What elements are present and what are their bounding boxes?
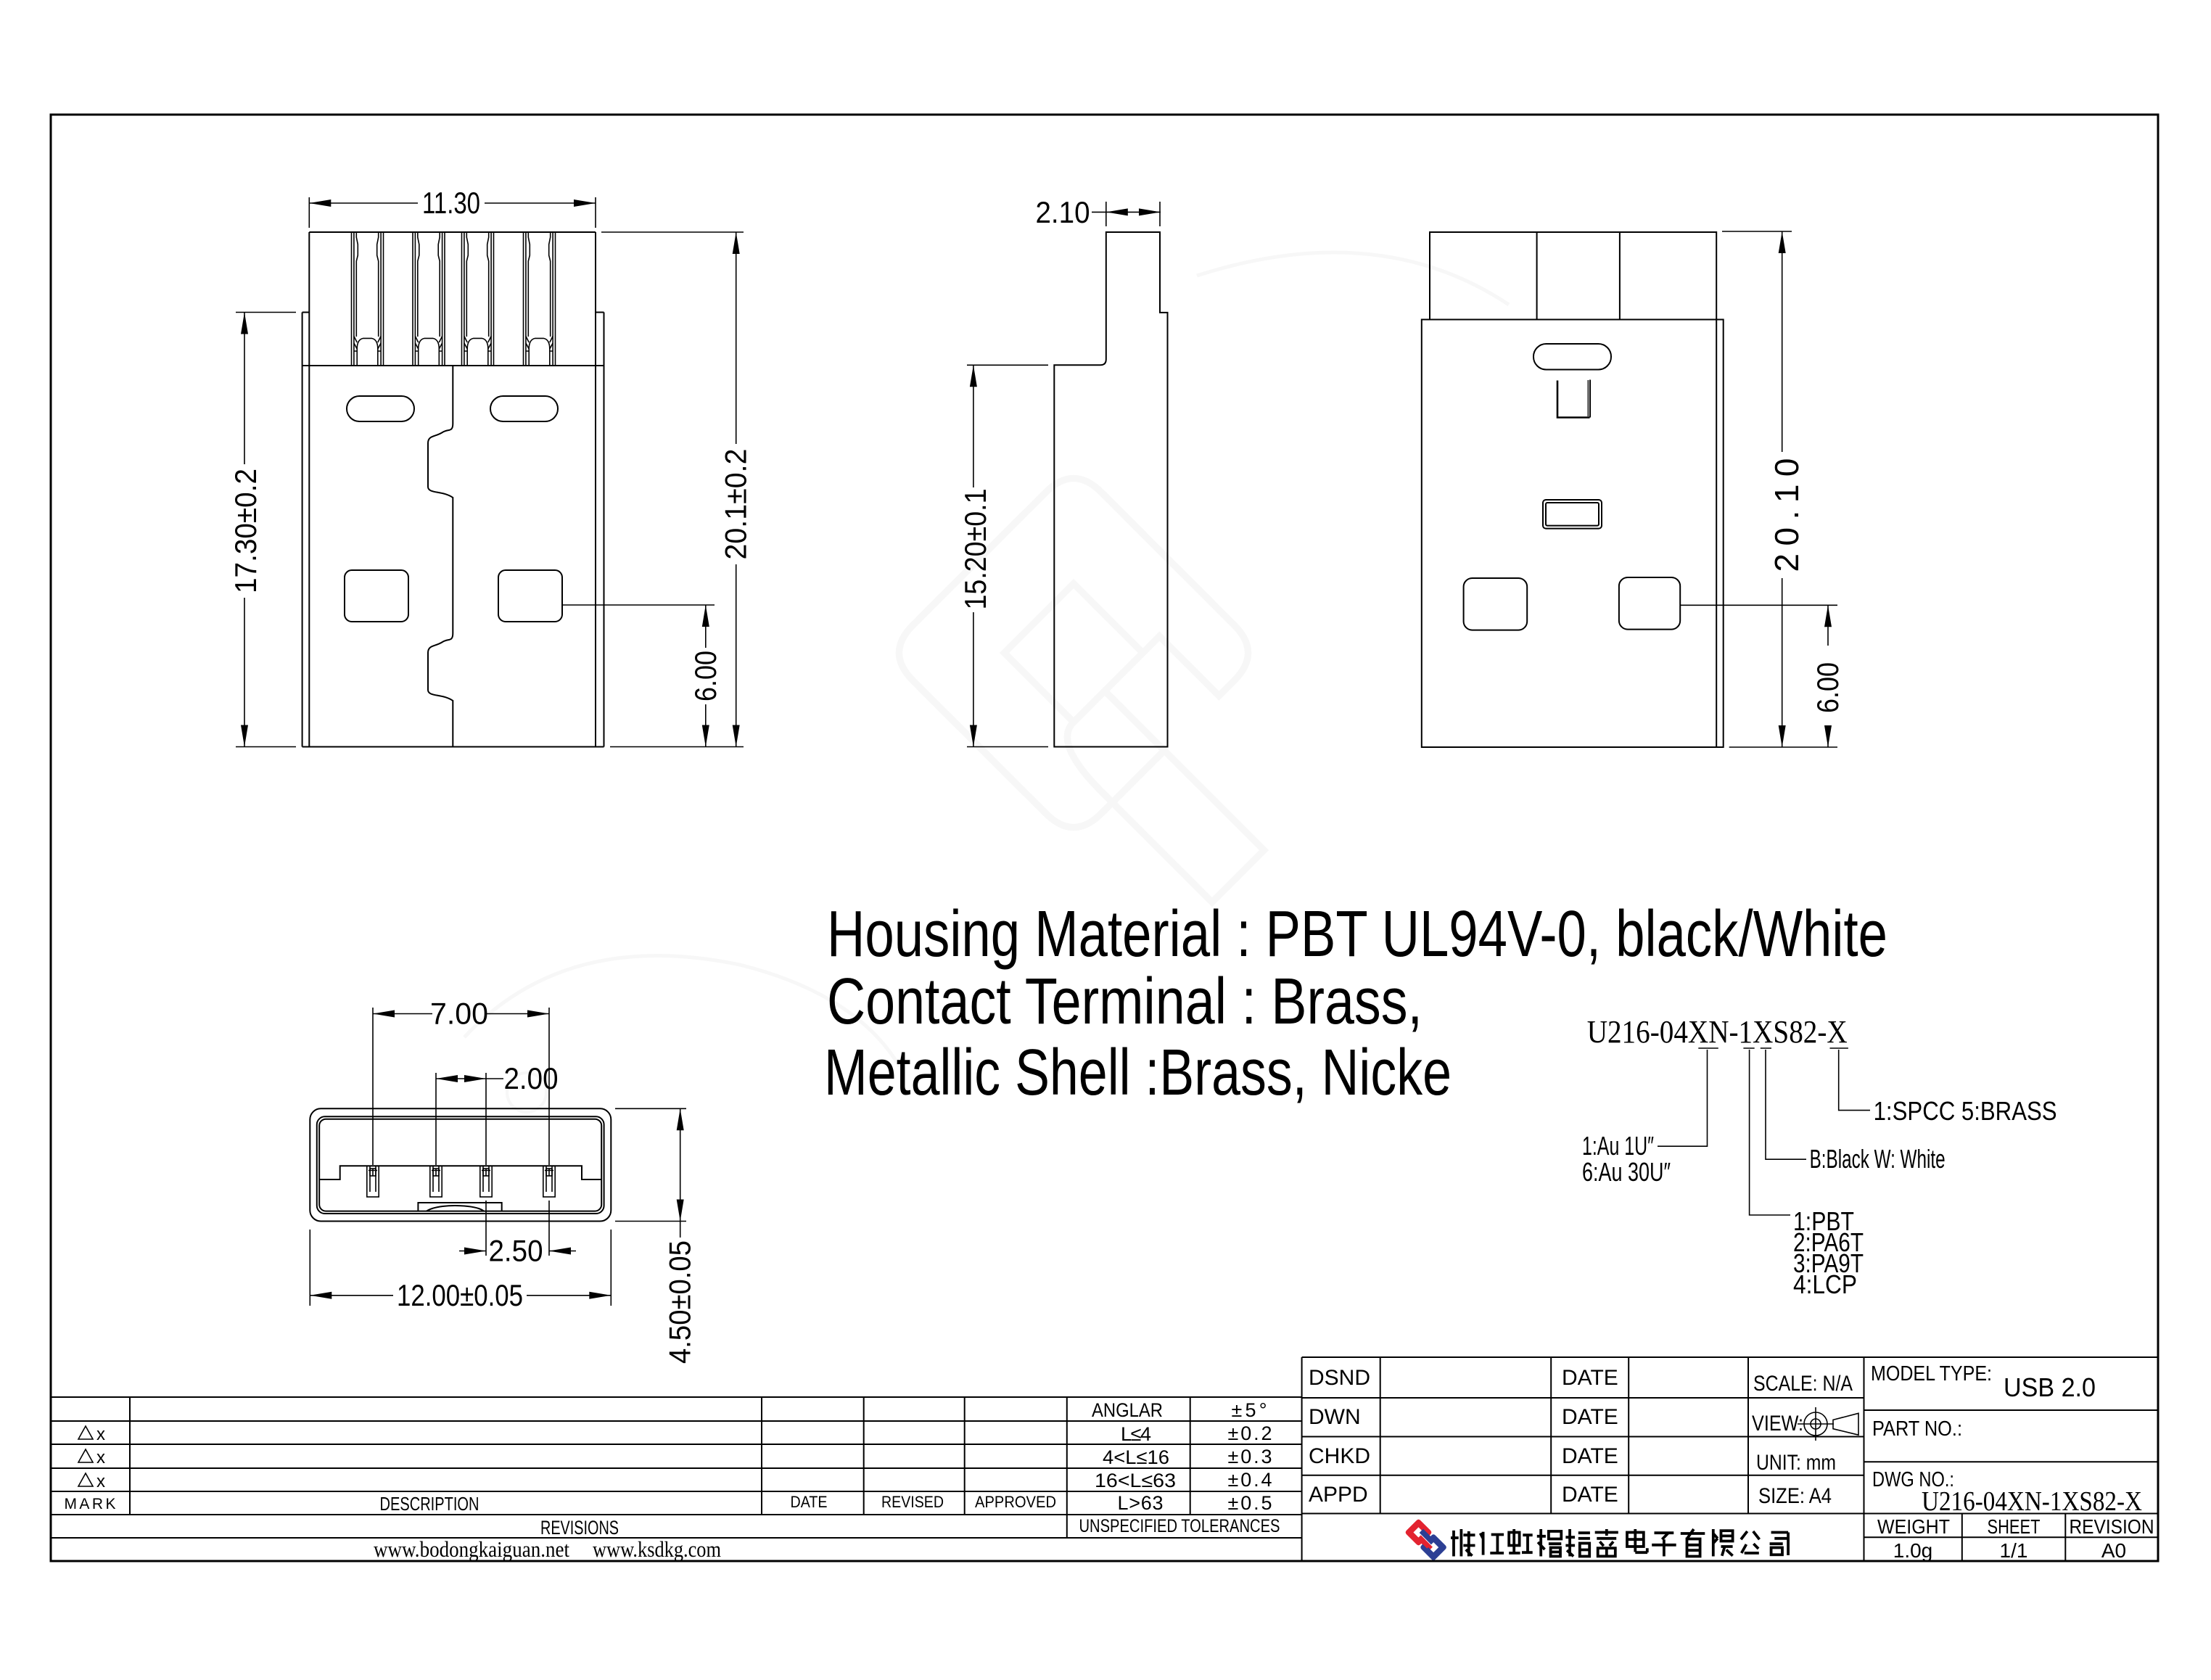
svg-text:±0.2: ±0.2: [1228, 1422, 1272, 1444]
svg-text:DATE: DATE: [791, 1493, 828, 1511]
svg-text:DATE: DATE: [1562, 1444, 1618, 1468]
svg-text:SCALE: N/A: SCALE: N/A: [1753, 1372, 1853, 1396]
svg-text:1:SPCC 5:BRASS: 1:SPCC 5:BRASS: [1874, 1096, 2057, 1126]
svg-text:11.30: 11.30: [422, 186, 480, 220]
svg-text:U216-04XN-1XS82-X: U216-04XN-1XS82-X: [1587, 1014, 1848, 1050]
svg-text:1.0g: 1.0g: [1893, 1539, 1933, 1562]
svg-text:APPD: APPD: [1309, 1483, 1368, 1507]
svg-text:www.ksdkg.com: www.ksdkg.com: [593, 1536, 721, 1562]
svg-text:x: x: [96, 1472, 105, 1491]
svg-text:DSND: DSND: [1309, 1366, 1370, 1390]
svg-text:15.20±0.1: 15.20±0.1: [958, 489, 992, 610]
svg-text:6.00: 6.00: [1811, 662, 1845, 713]
svg-text:REVISIONS: REVISIONS: [540, 1517, 619, 1539]
svg-text:x: x: [96, 1448, 105, 1467]
svg-text:UNIT: mm: UNIT: mm: [1756, 1451, 1836, 1475]
svg-text:B:Black W: White: B:Black W: White: [1810, 1144, 1946, 1174]
svg-text:WEIGHT: WEIGHT: [1877, 1515, 1950, 1538]
svg-text:USB 2.0: USB 2.0: [2004, 1372, 2096, 1402]
svg-text:www.bodongkaiguan.net: www.bodongkaiguan.net: [374, 1536, 569, 1562]
svg-text:L≤4: L≤4: [1121, 1423, 1151, 1445]
svg-text:4.50±0.05: 4.50±0.05: [663, 1240, 697, 1364]
svg-text:ANGLAR: ANGLAR: [1092, 1399, 1163, 1421]
svg-text:16<L≤63: 16<L≤63: [1095, 1470, 1176, 1491]
svg-text:x: x: [96, 1425, 105, 1444]
svg-text:SIZE: A4: SIZE: A4: [1758, 1484, 1832, 1508]
svg-text:REVISION: REVISION: [2070, 1515, 2154, 1538]
svg-text:PART NO.:: PART NO.:: [1872, 1417, 1962, 1441]
svg-text:±0.4: ±0.4: [1228, 1469, 1272, 1491]
svg-text:A0: A0: [2101, 1539, 2126, 1562]
svg-text:Contact Terminal : Brass,: Contact Terminal : Brass,: [827, 965, 1422, 1038]
svg-text:DWN: DWN: [1309, 1405, 1361, 1429]
svg-text:DATE: DATE: [1562, 1405, 1618, 1429]
svg-text:SHEET: SHEET: [1988, 1515, 2041, 1538]
svg-text:2.00: 2.00: [504, 1061, 559, 1095]
svg-text:1/1: 1/1: [2000, 1539, 2028, 1562]
svg-text:APPROVED: APPROVED: [975, 1493, 1056, 1511]
svg-text:VIEW:: VIEW:: [1752, 1412, 1803, 1436]
svg-text:2.10: 2.10: [1036, 195, 1090, 229]
svg-text:2.50: 2.50: [489, 1234, 543, 1268]
svg-text:17.30±0.2: 17.30±0.2: [228, 469, 263, 593]
svg-text:DATE: DATE: [1562, 1483, 1618, 1507]
svg-text:7.00: 7.00: [430, 997, 488, 1031]
svg-text:1:Au 1U″: 1:Au 1U″: [1582, 1131, 1654, 1161]
svg-text:4<L≤16: 4<L≤16: [1103, 1446, 1169, 1468]
svg-text:Metallic Shell :Brass, Nicke: Metallic Shell :Brass, Nicke: [824, 1037, 1452, 1109]
svg-text:6:Au 30U″: 6:Au 30U″: [1582, 1157, 1671, 1187]
svg-text:REVISED: REVISED: [881, 1493, 944, 1511]
svg-text:L>63: L>63: [1118, 1492, 1164, 1514]
svg-text:UNSPECIFIED TOLERANCES: UNSPECIFIED TOLERANCES: [1079, 1516, 1280, 1536]
svg-text:±0.5: ±0.5: [1228, 1492, 1272, 1514]
svg-text:6.00: 6.00: [688, 651, 722, 701]
svg-text:20.1±0.2: 20.1±0.2: [719, 449, 753, 560]
svg-text:DATE: DATE: [1562, 1366, 1618, 1390]
svg-text:Housing Material : PBT UL94V-: Housing Material : PBT UL94V-0, black/Wh…: [827, 898, 1887, 971]
svg-text:DESCRIPTION: DESCRIPTION: [380, 1493, 479, 1515]
svg-text:4:LCP: 4:LCP: [1793, 1269, 1857, 1299]
svg-text:CHKD: CHKD: [1309, 1444, 1370, 1468]
svg-text:MODEL TYPE:: MODEL TYPE:: [1871, 1362, 1992, 1385]
svg-text:12.00±0.05: 12.00±0.05: [397, 1278, 523, 1312]
svg-text:U216-04XN-1XS82-X: U216-04XN-1XS82-X: [1922, 1486, 2142, 1517]
svg-text:±5°: ±5°: [1232, 1399, 1267, 1421]
svg-text:20.10: 20.10: [1768, 458, 1806, 572]
svg-text:±0.3: ±0.3: [1228, 1446, 1272, 1467]
